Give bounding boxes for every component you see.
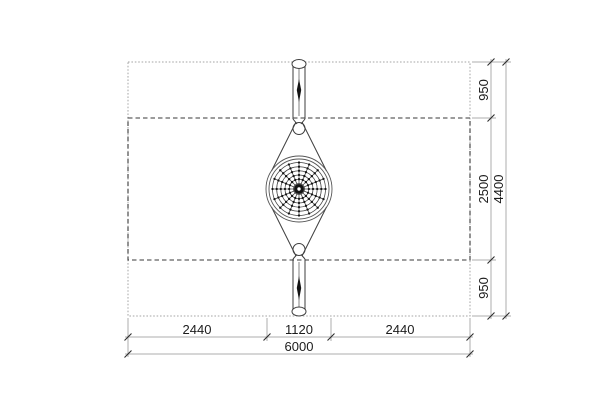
web-knot-dot [308,163,310,165]
web-knot-dot [276,188,278,190]
web-knot-dot [311,193,313,195]
bottom-post-cap [292,307,306,316]
web-knot-dot [282,172,284,174]
web-knot-dot [282,204,284,206]
web-knot-dot [281,181,283,183]
bottom-direction-arrow [297,276,301,300]
web-knot-dot [294,197,296,199]
dim-label-right-bottom: 950 [476,277,491,299]
web-knot-dot [315,195,317,197]
web-knot-dot [314,172,316,174]
web-knot-dot [288,198,290,200]
dim-label-bottom-center: 1120 [285,322,313,337]
web-knot-dot [305,195,307,197]
web-knot-dot [273,178,275,180]
dimension-extension-lines [128,62,511,357]
dim-label-bottom-left: 2440 [183,322,212,337]
web-knot-dot [288,163,290,165]
web-knot-dot [322,198,324,200]
web-knot-dot [273,198,275,200]
web-knot-dot [292,201,294,203]
web-knot-dot [302,179,304,181]
web-knot-dot [298,174,300,176]
web-knot-dot [284,188,286,190]
top-post-cap [292,60,306,69]
web-knot-dot [298,206,300,208]
web-knot-dot [271,188,273,190]
web-knot-dot [298,214,300,216]
web-knot-dot [308,212,310,214]
top-post-funnel [293,119,305,124]
web-knot-dot [316,188,318,190]
technical-drawing-page: 2440 1120 2440 6000 950 2500 950 4400 [0,0,600,400]
web-knot-dot [305,171,307,173]
web-knot-dot [277,196,279,198]
web-knot-dot [308,178,310,180]
web-knot-dot [288,188,290,190]
web-knot-dot [303,175,305,177]
web-knot-dot [289,167,291,169]
dim-label-right-total: 4400 [491,175,506,204]
web-knot-dot [311,175,313,177]
dim-label-bottom-total: 6000 [285,339,314,354]
top-rope-ring [293,123,305,135]
web-knot-dot [277,179,279,181]
web-knot-dot [288,212,290,214]
dim-label-right-top: 950 [476,79,491,101]
web-knot-dot [298,161,300,163]
web-knot-dot [318,179,320,181]
spider-web-net [266,156,332,222]
web-knot-dot [291,205,293,207]
web-hub-hole [297,187,300,190]
web-knot-dot [311,201,313,203]
dimension-lines [125,59,506,354]
web-knot-dot [289,192,291,194]
web-knot-dot [279,207,281,209]
web-knot-dot [305,205,307,207]
web-knot-dot [285,175,287,177]
dim-label-bottom-right: 2440 [386,322,415,337]
web-knot-dot [306,208,308,210]
bottom-rope-ring [293,244,305,256]
bottom-post [292,244,306,317]
web-knot-dot [298,170,300,172]
web-knot-dot [314,204,316,206]
web-knot-dot [291,181,293,183]
web-knot-dot [315,181,317,183]
web-knot-dot [298,178,300,180]
web-knot-dot [298,166,300,168]
web-knot-dot [279,169,281,171]
top-direction-arrow [297,79,301,102]
top-post [292,60,306,135]
web-knot-dot [324,188,326,190]
web-knot-dot [317,207,319,209]
web-knot-dot [289,208,291,210]
web-knot-dot [289,184,291,186]
web-knot-dot [294,179,296,181]
web-knot-dot [318,196,320,198]
web-knot-dot [307,184,309,186]
web-knot-dot [291,171,293,173]
web-knot-dot [311,182,313,184]
web-knot-dot [288,178,290,180]
web-knot-dot [298,198,300,200]
web-knot-dot [291,195,293,197]
web-knot-dot [305,181,307,183]
web-knot-dot [302,197,304,199]
web-knot-dot [320,188,322,190]
web-knot-dot [312,188,314,190]
plan-view-drawing: 2440 1120 2440 6000 950 2500 950 4400 [0,0,600,400]
web-knot-dot [285,193,287,195]
web-knot-dot [308,198,310,200]
web-knot-dot [303,201,305,203]
web-knot-dot [285,182,287,184]
web-knot-dot [281,195,283,197]
web-knot-dot [317,169,319,171]
web-knot-dot [307,192,309,194]
web-knot-dot [322,178,324,180]
dim-label-right-middle: 2500 [476,175,491,204]
web-knot-dot [308,188,310,190]
web-knot-dot [280,188,282,190]
web-knot-dot [285,201,287,203]
web-knot-dot [298,210,300,212]
web-knot-dot [292,175,294,177]
web-knot-dot [298,202,300,204]
web-knot-dot [306,167,308,169]
